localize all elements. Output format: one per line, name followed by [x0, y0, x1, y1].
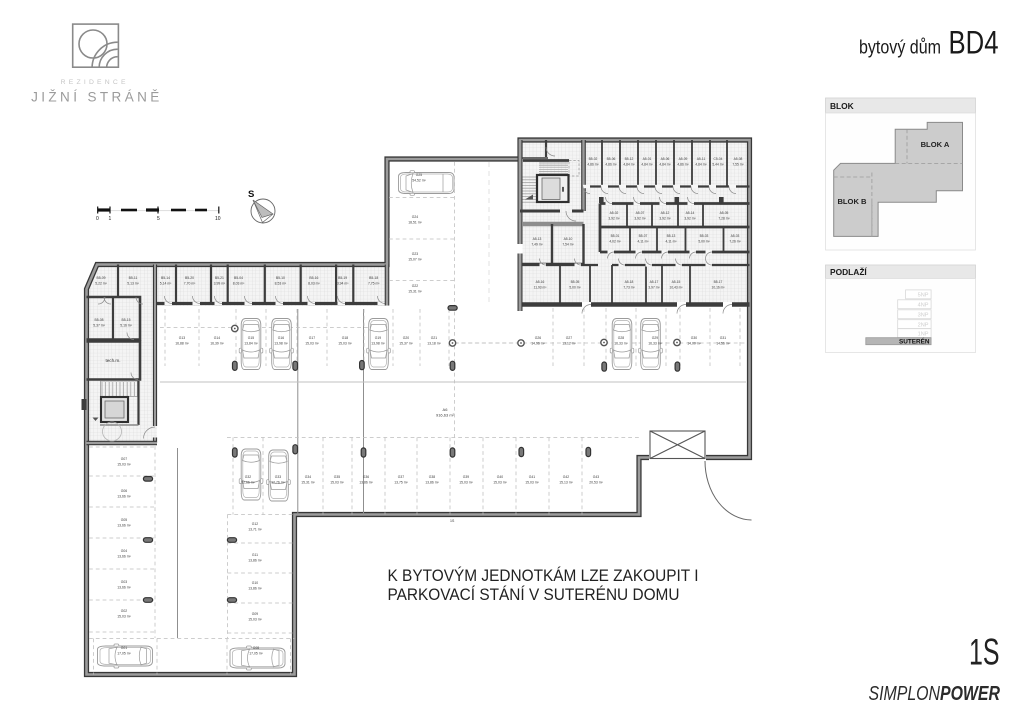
svg-text:B5-15: B5-15	[121, 318, 130, 322]
svg-text:B5-12: B5-12	[625, 157, 634, 161]
svg-text:REZIDENCE: REZIDENCE	[61, 79, 129, 86]
svg-text:G38: G38	[429, 475, 436, 479]
svg-text:B5-06: B5-06	[607, 157, 616, 161]
svg-text:17,05 m²: 17,05 m²	[249, 652, 263, 656]
svg-text:7,26 m²: 7,26 m²	[729, 240, 741, 244]
svg-text:B5-09: B5-09	[96, 276, 105, 280]
svg-text:4,86 m²: 4,86 m²	[677, 163, 689, 167]
svg-text:G14: G14	[214, 336, 221, 340]
svg-text:15,03 m²: 15,03 m²	[117, 615, 131, 619]
svg-text:B5-01: B5-01	[611, 234, 620, 238]
svg-text:12,66 m²: 12,66 m²	[241, 481, 255, 485]
svg-text:G02: G02	[121, 609, 128, 613]
svg-text:G31: G31	[720, 336, 727, 340]
svg-text:20,53 m²: 20,53 m²	[589, 481, 603, 485]
svg-text:G08: G08	[253, 646, 260, 650]
svg-text:15,03 m²: 15,03 m²	[248, 618, 262, 622]
svg-text:4NP: 4NP	[918, 303, 929, 309]
svg-text:13,86 m²: 13,86 m²	[359, 481, 373, 485]
svg-text:18,51 m²: 18,51 m²	[408, 221, 422, 225]
svg-text:0: 0	[96, 216, 99, 222]
svg-text:15,03 m²: 15,03 m²	[525, 481, 539, 485]
svg-text:G26: G26	[535, 336, 542, 340]
svg-text:3,94 m²: 3,94 m²	[337, 282, 349, 286]
svg-text:PODLAŽÍ: PODLAŽÍ	[830, 266, 867, 277]
svg-text:B5-10: B5-10	[276, 276, 285, 280]
svg-text:5NP: 5NP	[918, 293, 929, 299]
svg-text:13,66 m²: 13,66 m²	[117, 555, 131, 559]
svg-text:G19: G19	[375, 336, 382, 340]
svg-text:916,63 m²: 916,63 m²	[436, 413, 455, 418]
svg-text:1S: 1S	[450, 519, 455, 523]
svg-text:16,88 m²: 16,88 m²	[175, 342, 189, 346]
svg-text:A5-07: A5-07	[636, 211, 645, 215]
svg-text:G25: G25	[416, 173, 423, 177]
svg-text:4,02 m²: 4,02 m²	[609, 240, 621, 244]
svg-text:SUTERÉN: SUTERÉN	[899, 337, 930, 346]
svg-text:13,71 m²: 13,71 m²	[248, 528, 262, 532]
svg-text:5,16 m²: 5,16 m²	[120, 324, 132, 328]
svg-text:5,13 m²: 5,13 m²	[127, 282, 139, 286]
svg-text:1NP: 1NP	[918, 331, 929, 337]
svg-text:A5-01: A5-01	[643, 157, 652, 161]
svg-text:13,84 m²: 13,84 m²	[244, 342, 258, 346]
svg-text:G20: G20	[403, 336, 410, 340]
svg-text:13,98 m²: 13,98 m²	[371, 342, 385, 346]
svg-text:G34: G34	[305, 475, 312, 479]
svg-text:5,37 m²: 5,37 m²	[93, 324, 105, 328]
svg-text:13,86 m²: 13,86 m²	[425, 481, 439, 485]
svg-text:SIMPLONPOWER: SIMPLONPOWER	[869, 683, 1001, 705]
svg-text:12,76 m²: 12,76 m²	[271, 481, 285, 485]
svg-text:A5-03: A5-03	[731, 234, 740, 238]
svg-text:8,03 m²: 8,03 m²	[233, 282, 245, 286]
svg-text:A5-13: A5-13	[533, 237, 542, 241]
svg-text:3,99 m²: 3,99 m²	[214, 282, 226, 286]
svg-text:4,84 m²: 4,84 m²	[659, 163, 671, 167]
svg-text:K BYTOVÝM JEDNOTKÁM LZE ZAKOUP: K BYTOVÝM JEDNOTKÁM LZE ZAKOUPIT I	[388, 566, 699, 585]
svg-text:B5-07: B5-07	[639, 234, 648, 238]
svg-text:15,07 m²: 15,07 m²	[408, 258, 422, 262]
svg-text:G37: G37	[398, 475, 405, 479]
svg-text:14,96 m²: 14,96 m²	[531, 342, 545, 346]
svg-text:3,92 m²: 3,92 m²	[634, 217, 646, 221]
svg-text:7,54 m²: 7,54 m²	[562, 243, 574, 247]
svg-text:15,37 m²: 15,37 m²	[399, 342, 413, 346]
svg-text:3,97 m²: 3,97 m²	[648, 286, 660, 290]
svg-text:15,31 m²: 15,31 m²	[408, 290, 422, 294]
svg-text:G27: G27	[566, 336, 573, 340]
svg-text:B5-08: B5-08	[94, 318, 103, 322]
svg-text:B5-16: B5-16	[309, 276, 318, 280]
svg-text:4,84 m²: 4,84 m²	[641, 163, 653, 167]
svg-text:G22: G22	[412, 284, 419, 288]
svg-text:B5-17: B5-17	[714, 280, 723, 284]
svg-text:G24: G24	[412, 215, 419, 219]
svg-text:15,31 m²: 15,31 m²	[301, 481, 315, 485]
svg-text:13,66 m²: 13,66 m²	[117, 524, 131, 528]
svg-text:B5-05: B5-05	[571, 280, 580, 284]
svg-text:G01: G01	[121, 646, 128, 650]
svg-text:A5-14: A5-14	[686, 211, 695, 215]
svg-text:A6: A6	[443, 407, 449, 412]
svg-text:13,18 m²: 13,18 m²	[427, 342, 441, 346]
svg-text:3,92 m²: 3,92 m²	[684, 217, 696, 221]
svg-text:4,86 m²: 4,86 m²	[587, 163, 599, 167]
svg-text:A5-10: A5-10	[564, 237, 573, 241]
svg-text:G12: G12	[252, 522, 259, 526]
svg-text:5: 5	[157, 216, 160, 222]
svg-text:G10: G10	[252, 581, 259, 585]
svg-text:JIŽNÍ STRÁNĚ: JIŽNÍ STRÁNĚ	[31, 90, 163, 105]
svg-text:G28: G28	[618, 336, 625, 340]
svg-text:B5-19: B5-19	[338, 276, 347, 280]
svg-text:A5-06: A5-06	[661, 157, 670, 161]
svg-text:A5-09: A5-09	[679, 157, 688, 161]
svg-text:bytový dům: bytový dům	[859, 37, 941, 59]
svg-text:5,44 m²: 5,44 m²	[712, 163, 724, 167]
svg-text:G17: G17	[309, 336, 316, 340]
svg-text:G39: G39	[463, 475, 470, 479]
svg-text:G35: G35	[334, 475, 341, 479]
svg-text:G41: G41	[529, 475, 536, 479]
svg-text:7,75 m²: 7,75 m²	[368, 282, 380, 286]
svg-text:15,03 m²: 15,03 m²	[330, 481, 344, 485]
svg-text:15,13 m²: 15,13 m²	[559, 481, 573, 485]
svg-text:7,55 m²: 7,55 m²	[732, 163, 744, 167]
svg-text:4,11 m²: 4,11 m²	[638, 240, 650, 244]
svg-text:14,56 m²: 14,56 m²	[716, 342, 730, 346]
svg-text:A5-15: A5-15	[672, 280, 681, 284]
svg-text:3,92 m²: 3,92 m²	[659, 217, 671, 221]
svg-text:BLOK B: BLOK B	[837, 197, 867, 206]
svg-text:G21: G21	[431, 336, 438, 340]
svg-text:G11: G11	[252, 553, 258, 557]
svg-text:3NP: 3NP	[918, 313, 929, 319]
svg-text:10,16 m²: 10,16 m²	[711, 286, 725, 290]
svg-text:13,66 m²: 13,66 m²	[117, 586, 131, 590]
svg-text:5,14 m²: 5,14 m²	[160, 282, 172, 286]
svg-text:G09: G09	[252, 612, 259, 616]
svg-text:15,03 m²: 15,03 m²	[338, 342, 352, 346]
svg-text:A5-05: A5-05	[720, 211, 729, 215]
svg-text:5,00 m²: 5,00 m²	[569, 286, 581, 290]
svg-text:13,66 m²: 13,66 m²	[117, 495, 131, 499]
svg-text:15,03 m²: 15,03 m²	[459, 481, 473, 485]
svg-text:8,03 m²: 8,03 m²	[308, 282, 320, 286]
svg-text:B5-03: B5-03	[700, 234, 709, 238]
svg-text:13,86 m²: 13,86 m²	[248, 559, 262, 563]
svg-text:15,03 m²: 15,03 m²	[305, 342, 319, 346]
svg-text:G40: G40	[497, 475, 504, 479]
svg-text:5,00 m²: 5,00 m²	[698, 240, 710, 244]
svg-text:G06: G06	[121, 489, 128, 493]
svg-text:G43: G43	[593, 475, 600, 479]
svg-text:G16: G16	[278, 336, 285, 340]
svg-text:A5-12: A5-12	[661, 211, 670, 215]
svg-text:2NP: 2NP	[918, 322, 929, 328]
svg-text:8,53 m²: 8,53 m²	[275, 282, 287, 286]
svg-text:16,33 m²: 16,33 m²	[648, 342, 662, 346]
svg-text:S: S	[248, 189, 254, 200]
svg-text:16,33 m²: 16,33 m²	[614, 342, 628, 346]
svg-text:A5-17: A5-17	[650, 280, 659, 284]
svg-text:G13: G13	[179, 336, 186, 340]
svg-text:16,39 m²: 16,39 m²	[210, 342, 224, 346]
svg-text:4,84 m²: 4,84 m²	[623, 163, 635, 167]
svg-text:C5-04: C5-04	[714, 157, 723, 161]
svg-text:13,98 m²: 13,98 m²	[274, 342, 288, 346]
svg-text:3,92 m²: 3,92 m²	[608, 217, 620, 221]
svg-text:17,05 m²: 17,05 m²	[117, 652, 131, 656]
svg-text:B5-20: B5-20	[185, 276, 194, 280]
svg-text:10: 10	[215, 216, 221, 222]
svg-text:4,86 m²: 4,86 m²	[605, 163, 617, 167]
svg-text:5,22 m²: 5,22 m²	[95, 282, 107, 286]
svg-text:B5-02: B5-02	[589, 157, 598, 161]
svg-text:G05: G05	[121, 518, 128, 522]
svg-text:10,43 m²: 10,43 m²	[669, 286, 683, 290]
svg-text:14,00 m²: 14,00 m²	[687, 342, 701, 346]
svg-text:A5-11: A5-11	[697, 157, 706, 161]
svg-text:G04: G04	[121, 549, 128, 553]
svg-text:A5-16: A5-16	[536, 280, 545, 284]
svg-text:G15: G15	[248, 336, 255, 340]
svg-text:4,84 m²: 4,84 m²	[695, 163, 707, 167]
svg-text:15,03 m²: 15,03 m²	[117, 463, 131, 467]
svg-text:B5-13: B5-13	[667, 234, 676, 238]
svg-text:A5-08: A5-08	[734, 157, 743, 161]
svg-text:G29: G29	[652, 336, 659, 340]
svg-text:A5-02: A5-02	[610, 211, 619, 215]
svg-text:G03: G03	[121, 580, 128, 584]
svg-text:7,70 m²: 7,70 m²	[184, 282, 196, 286]
svg-text:PARKOVACÍ STÁNÍ V SUTERÉNU DOM: PARKOVACÍ STÁNÍ V SUTERÉNU DOMU	[388, 585, 680, 604]
svg-text:G18: G18	[342, 336, 349, 340]
svg-text:1S: 1S	[969, 632, 1000, 673]
svg-text:15,03 m²: 15,03 m²	[493, 481, 507, 485]
svg-text:BLOK: BLOK	[830, 101, 854, 111]
svg-text:13,86 m²: 13,86 m²	[248, 587, 262, 591]
svg-text:G32: G32	[245, 475, 252, 479]
svg-text:B5-18: B5-18	[369, 276, 378, 280]
svg-text:B5-11: B5-11	[129, 276, 138, 280]
svg-text:G42: G42	[563, 475, 570, 479]
svg-text:tech.m.: tech.m.	[105, 358, 120, 363]
svg-text:BLOK A: BLOK A	[921, 140, 950, 149]
svg-text:7,73 m²: 7,73 m²	[623, 286, 635, 290]
svg-text:B5-21: B5-21	[215, 276, 224, 280]
svg-text:13,75 m²: 13,75 m²	[394, 481, 408, 485]
svg-text:G23: G23	[412, 252, 419, 256]
svg-text:7,49 m²: 7,49 m²	[531, 243, 543, 247]
svg-text:BD4: BD4	[949, 25, 999, 61]
svg-text:11,93 m²: 11,93 m²	[534, 286, 548, 290]
svg-text:4,11 m²: 4,11 m²	[666, 240, 678, 244]
svg-text:B5-04: B5-04	[234, 276, 243, 280]
svg-text:G36: G36	[363, 475, 370, 479]
svg-text:G30: G30	[691, 336, 698, 340]
svg-text:A5-18: A5-18	[625, 280, 634, 284]
svg-text:G07: G07	[121, 457, 128, 461]
svg-text:1: 1	[109, 216, 112, 222]
svg-text:B5-14: B5-14	[161, 276, 170, 280]
svg-text:54,52 m²: 54,52 m²	[412, 179, 426, 183]
svg-text:7,28 m²: 7,28 m²	[718, 217, 730, 221]
svg-text:13,12 m²: 13,12 m²	[562, 342, 576, 346]
svg-text:G33: G33	[275, 475, 282, 479]
